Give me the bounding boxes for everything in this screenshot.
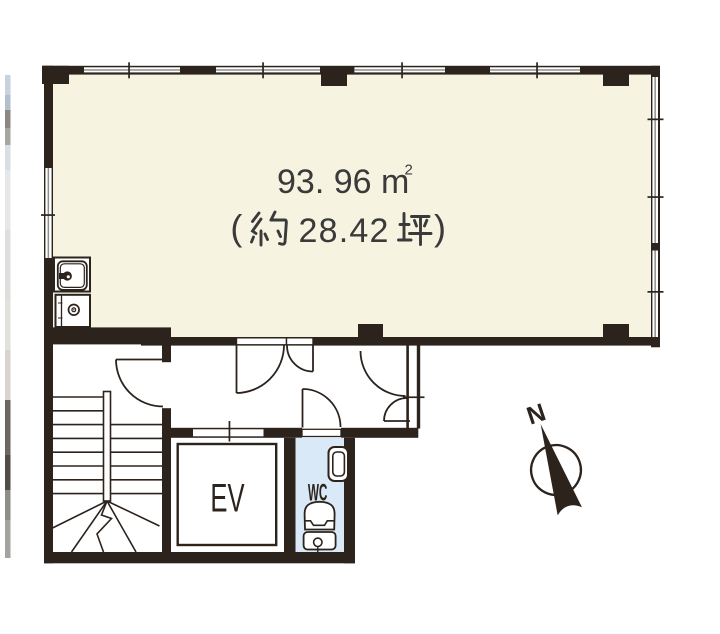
svg-text:28.42: 28.42 [299, 212, 390, 250]
svg-text:): ) [434, 207, 446, 248]
svg-text:EV: EV [210, 477, 245, 521]
svg-text:(: ( [230, 207, 242, 248]
svg-text:93. 96 m: 93. 96 m [277, 163, 409, 201]
svg-text:2: 2 [405, 162, 413, 179]
